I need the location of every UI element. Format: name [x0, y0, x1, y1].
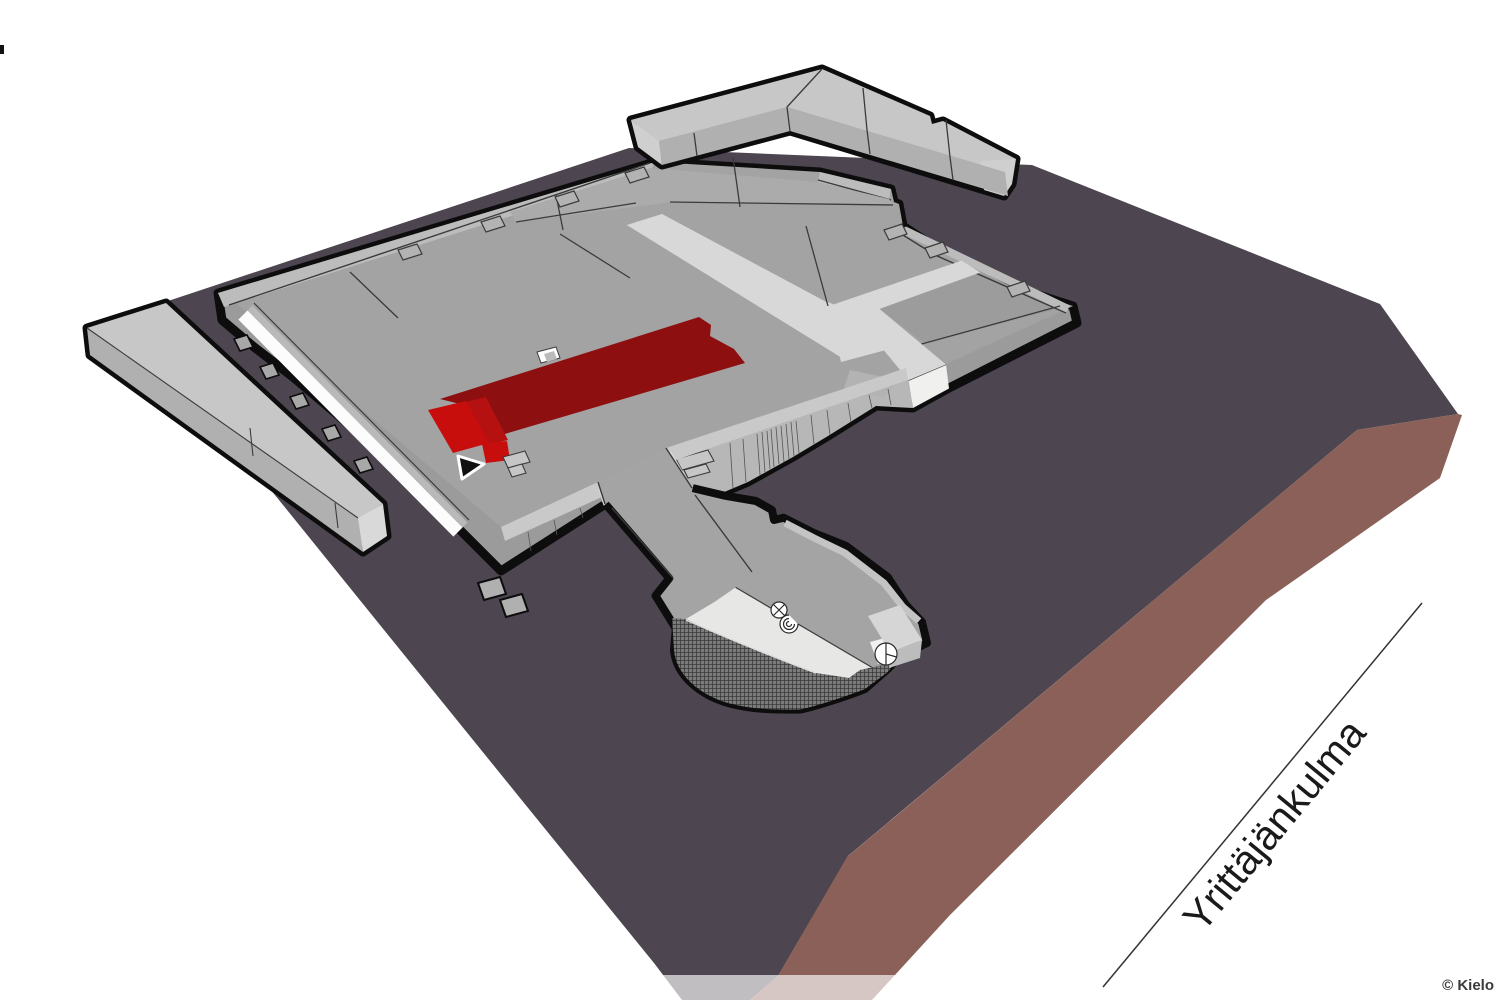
svg-text:© Kielo: © Kielo [1442, 977, 1494, 994]
